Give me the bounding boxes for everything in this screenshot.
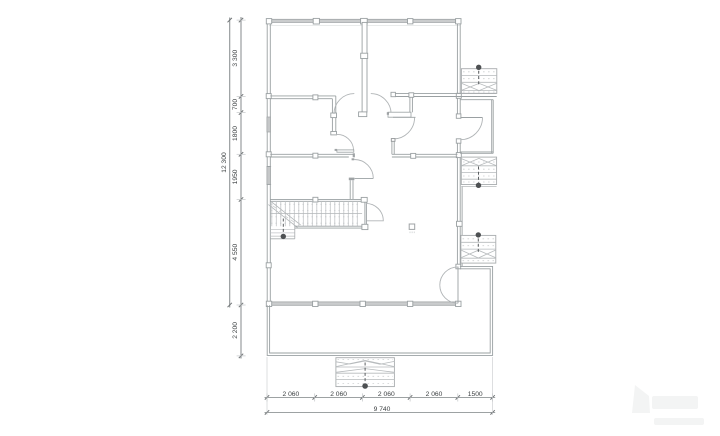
svg-text:1800: 1800: [232, 126, 239, 141]
svg-text:1950: 1950: [232, 169, 239, 184]
svg-text:2 060: 2 060: [426, 391, 443, 398]
svg-text:1500: 1500: [468, 391, 483, 398]
svg-text:12 300: 12 300: [221, 152, 228, 173]
svg-text:3 300: 3 300: [232, 50, 239, 67]
svg-text:2 200: 2 200: [232, 322, 239, 339]
svg-text:2 060: 2 060: [378, 391, 395, 398]
svg-text:700: 700: [232, 99, 239, 110]
svg-text:2 060: 2 060: [330, 391, 347, 398]
svg-text:9 740: 9 740: [374, 406, 391, 413]
svg-text:4 550: 4 550: [232, 244, 239, 261]
svg-text:2 060: 2 060: [283, 391, 300, 398]
